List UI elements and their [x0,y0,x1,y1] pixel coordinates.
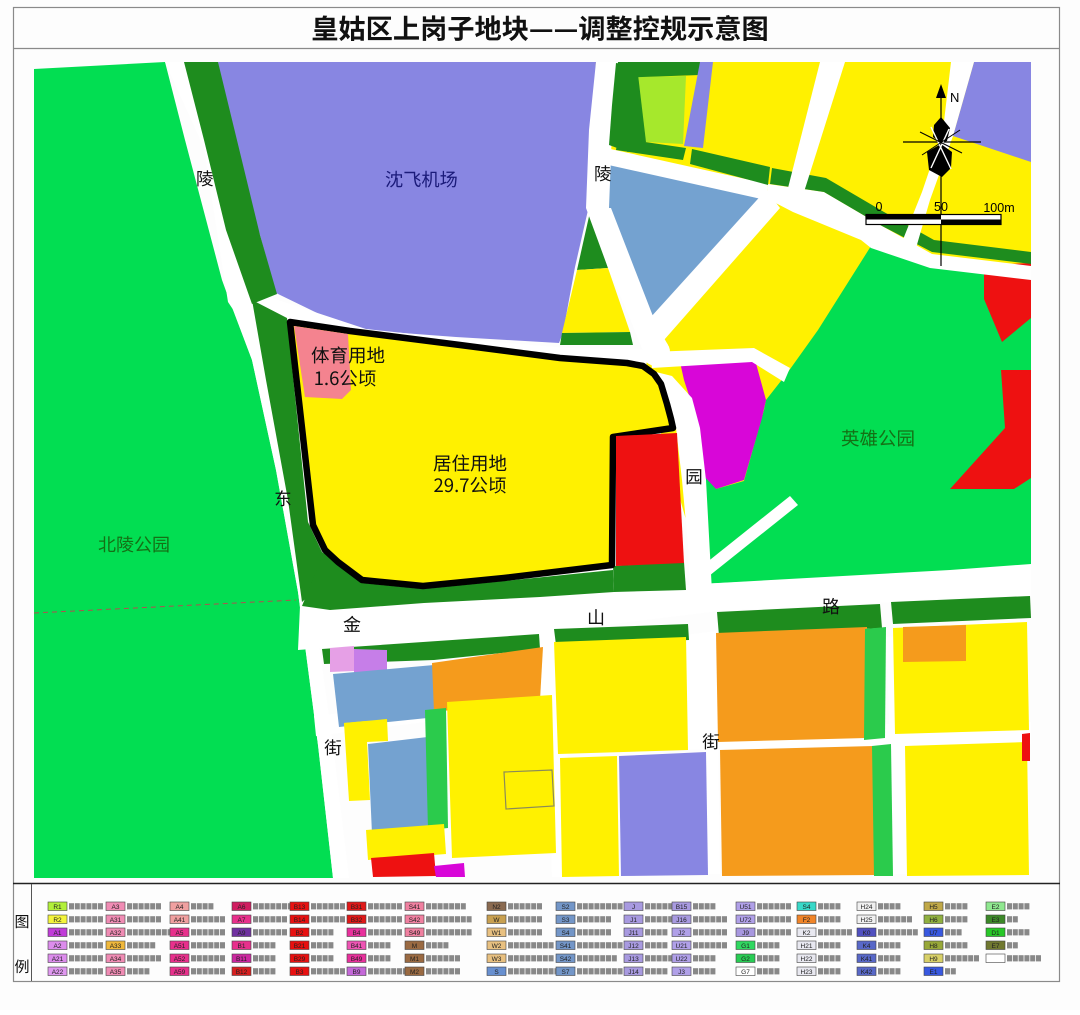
svg-text:B31: B31 [351,904,363,911]
svg-text:S49: S49 [409,930,421,937]
svg-text:B3: B3 [296,969,304,976]
svg-text:S42: S42 [409,917,421,924]
svg-text:A33: A33 [110,943,122,950]
svg-text:H5: H5 [929,904,938,911]
svg-text:U21: U21 [676,943,688,950]
svg-text:F2: F2 [803,917,811,924]
svg-text:B11: B11 [236,956,247,963]
svg-text:J1: J1 [630,917,637,924]
svg-text:K2: K2 [803,930,811,937]
svg-text:H24: H24 [861,904,873,911]
svg-text:A9: A9 [238,930,246,937]
svg-text:U72: U72 [740,917,752,924]
svg-text:B4: B4 [353,930,361,937]
svg-text:D1: D1 [991,930,1000,937]
svg-text:N2: N2 [492,904,501,911]
svg-text:H8: H8 [929,943,938,950]
svg-text:G1: G1 [741,943,750,950]
svg-text:M: M [412,943,417,950]
svg-text:S7: S7 [562,969,570,976]
svg-text:B1: B1 [238,943,246,950]
svg-text:W2: W2 [492,943,502,950]
svg-text:A3: A3 [112,904,120,911]
svg-text:R1: R1 [53,904,62,911]
svg-text:B32: B32 [351,917,363,924]
svg-text:W: W [493,917,500,924]
svg-text:S42: S42 [560,956,572,963]
svg-text:A21: A21 [52,956,64,963]
svg-text:J11: J11 [629,930,639,937]
svg-text:K41: K41 [861,956,873,963]
svg-text:B41: B41 [351,943,363,950]
svg-text:W3: W3 [492,956,502,963]
svg-text:S4: S4 [562,930,570,937]
svg-text:B14: B14 [294,917,306,924]
svg-text:G2: G2 [741,956,750,963]
svg-text:K0: K0 [863,930,871,937]
svg-text:E3: E3 [992,917,1000,924]
svg-text:E7: E7 [992,943,1000,950]
svg-text:B49: B49 [351,956,363,963]
svg-text:A41: A41 [174,917,186,924]
svg-text:K4: K4 [863,943,871,950]
svg-text:A22: A22 [52,969,64,976]
svg-text:J12: J12 [628,943,639,950]
svg-text:B2: B2 [296,930,304,937]
svg-text:E1: E1 [930,969,938,976]
svg-text:B21: B21 [294,943,306,950]
svg-text:B9: B9 [353,969,361,976]
svg-text:A31: A31 [110,917,122,924]
svg-text:U51: U51 [740,904,752,911]
svg-text:H9: H9 [929,956,938,963]
svg-text:A51: A51 [174,943,186,950]
svg-text:B29: B29 [294,956,306,963]
svg-text:J14: J14 [628,969,639,976]
svg-text:J3: J3 [678,969,685,976]
svg-text:J13: J13 [628,956,639,963]
svg-text:E2: E2 [992,904,1000,911]
svg-text:S3: S3 [562,917,570,924]
svg-text:B13: B13 [294,904,306,911]
svg-text:U7: U7 [929,930,938,937]
svg-text:J9: J9 [742,930,749,937]
svg-text:A5: A5 [176,930,184,937]
svg-text:S41: S41 [409,904,421,911]
svg-text:N: N [950,90,959,105]
svg-text:A7: A7 [238,917,246,924]
svg-text:J2: J2 [678,930,685,937]
svg-text:A52: A52 [174,956,186,963]
svg-text:0: 0 [876,200,883,214]
svg-text:K42: K42 [861,969,873,976]
svg-text:B15: B15 [676,904,688,911]
svg-text:G7: G7 [741,969,750,976]
svg-text:100m: 100m [983,201,1014,215]
svg-text:H21: H21 [801,943,813,950]
svg-text:A34: A34 [110,956,122,963]
svg-text:H25: H25 [861,917,873,924]
svg-text:A32: A32 [110,930,122,937]
svg-text:U22: U22 [676,956,688,963]
svg-text:S4: S4 [803,904,811,911]
svg-text:S: S [494,969,499,976]
svg-text:M1: M1 [410,956,419,963]
svg-text:J: J [632,904,635,911]
svg-text:R2: R2 [53,917,62,924]
svg-text:A2: A2 [54,943,62,950]
svg-text:S2: S2 [562,904,570,911]
svg-text:B12: B12 [236,969,248,976]
svg-text:S41: S41 [560,943,572,950]
svg-text:H6: H6 [929,917,938,924]
svg-text:A6: A6 [238,904,246,911]
svg-text:A4: A4 [176,904,184,911]
svg-text:H22: H22 [801,956,813,963]
svg-text:A35: A35 [110,969,122,976]
svg-text:H23: H23 [801,969,813,976]
svg-text:50: 50 [934,200,948,214]
svg-text:A1: A1 [54,930,62,937]
svg-text:J16: J16 [676,917,687,924]
svg-text:A59: A59 [174,969,186,976]
svg-text:W1: W1 [492,930,502,937]
svg-text:M2: M2 [410,969,419,976]
